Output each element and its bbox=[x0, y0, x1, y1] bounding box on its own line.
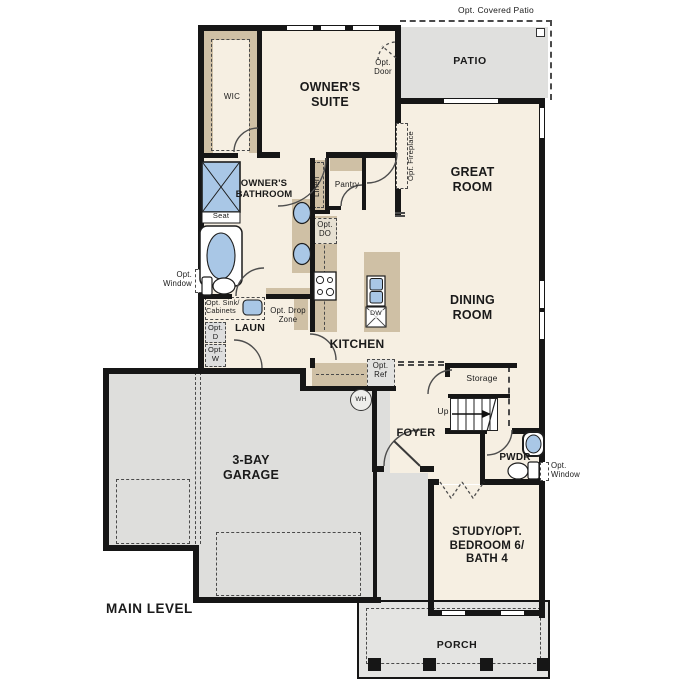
wall bbox=[257, 28, 262, 158]
window bbox=[539, 311, 545, 340]
wall bbox=[103, 545, 198, 551]
opt-door-label: Opt. Door bbox=[368, 58, 398, 76]
room-label-pantry: Pantry bbox=[328, 180, 366, 189]
opt-sink-cabinets-label: Opt. Sink/ Cabinets bbox=[206, 299, 250, 316]
porch-inner-dash bbox=[366, 608, 541, 664]
room-label-garage: 3-BAY GARAGE bbox=[196, 453, 306, 483]
window bbox=[286, 25, 314, 31]
room-label-linen: Linen bbox=[312, 164, 325, 210]
opt-dryer-label: Opt. D bbox=[205, 324, 226, 342]
wall bbox=[445, 363, 517, 368]
porch-column bbox=[537, 658, 550, 671]
room-label-storage: Storage bbox=[456, 373, 508, 383]
wall bbox=[466, 610, 500, 616]
room-label-porch: PORCH bbox=[426, 639, 488, 651]
opt-window-bath-label: Opt. Window bbox=[150, 270, 192, 288]
room-label-owners-suite: OWNER'S SUITE bbox=[270, 80, 390, 110]
room-label-great-room: GREAT ROOM bbox=[430, 165, 515, 195]
wall bbox=[103, 368, 306, 374]
room-label-dining-room: DINING ROOM bbox=[430, 293, 515, 323]
wall bbox=[198, 25, 204, 371]
window bbox=[539, 280, 545, 309]
patio-corner-fixture bbox=[536, 28, 545, 37]
wall bbox=[372, 466, 384, 472]
wall bbox=[512, 428, 545, 434]
wall bbox=[372, 391, 377, 471]
wall bbox=[300, 386, 396, 391]
wall bbox=[373, 471, 377, 602]
room-label-foyer: FOYER bbox=[390, 427, 442, 440]
room-label-patio: PATIO bbox=[440, 55, 500, 67]
opt-drop-zone-label: Opt. Drop Zone bbox=[264, 306, 312, 324]
wall bbox=[484, 479, 545, 485]
wall bbox=[198, 153, 238, 158]
room-label-study: STUDY/OPT. BEDROOM 6/ BATH 4 bbox=[432, 526, 542, 567]
garage-door-left-dash bbox=[116, 479, 190, 544]
window bbox=[539, 107, 545, 139]
porch-column bbox=[480, 658, 493, 671]
sliding-door bbox=[443, 98, 499, 104]
shower-seat-label: Seat bbox=[202, 212, 240, 221]
wall bbox=[445, 363, 450, 377]
porch-column bbox=[423, 658, 436, 671]
window bbox=[320, 25, 346, 31]
wall bbox=[480, 428, 485, 485]
wall bbox=[428, 610, 441, 616]
kitchen-island bbox=[364, 252, 400, 332]
opt-ref-label: Opt. Ref bbox=[366, 361, 395, 379]
wall bbox=[262, 152, 280, 158]
porch-column bbox=[368, 658, 381, 671]
dishwasher-label: DW bbox=[367, 310, 385, 318]
stairs bbox=[450, 398, 498, 431]
floor-plan: WH bbox=[0, 0, 687, 687]
wall bbox=[103, 368, 109, 551]
room-label-wic: WIC bbox=[212, 92, 252, 101]
wall bbox=[310, 358, 315, 368]
opt-covered-patio-label: Opt. Covered Patio bbox=[432, 5, 560, 15]
wall bbox=[266, 294, 312, 299]
opt-washer-label: Opt. W bbox=[205, 346, 226, 364]
wall bbox=[329, 206, 341, 210]
garage-door-main-dash bbox=[216, 532, 361, 596]
window bbox=[500, 610, 525, 616]
room-label-powder: PWDR bbox=[492, 452, 538, 464]
floor-great-dining bbox=[401, 104, 539, 368]
window bbox=[352, 25, 380, 31]
window bbox=[441, 610, 466, 616]
opt-window-pwdr-box bbox=[540, 462, 549, 481]
pantry-shelf bbox=[330, 158, 362, 171]
wall bbox=[420, 466, 434, 472]
wall bbox=[525, 610, 545, 616]
opt-fireplace-label: Opt. Fireplace bbox=[407, 118, 419, 194]
opening-hall-dash bbox=[395, 212, 405, 217]
floor-entry-walk bbox=[377, 473, 428, 603]
level-label: MAIN LEVEL bbox=[106, 601, 246, 617]
room-label-owners-bathroom: OWNER'S BATHROOM bbox=[216, 178, 312, 200]
kitchen-counter-bottom-dashline bbox=[316, 374, 364, 375]
wall bbox=[193, 545, 199, 602]
water-heater: WH bbox=[350, 389, 372, 411]
opt-window-pwdr-label: Opt. Window bbox=[551, 461, 591, 479]
stairs-up-label: Up bbox=[434, 406, 452, 416]
opening-dining-dash bbox=[398, 361, 444, 366]
room-label-kitchen: KITCHEN bbox=[322, 337, 392, 351]
opt-do-label: Opt. DO bbox=[313, 220, 337, 238]
opt-window-bath-box bbox=[195, 269, 205, 293]
water-heater-label: WH bbox=[355, 396, 366, 404]
